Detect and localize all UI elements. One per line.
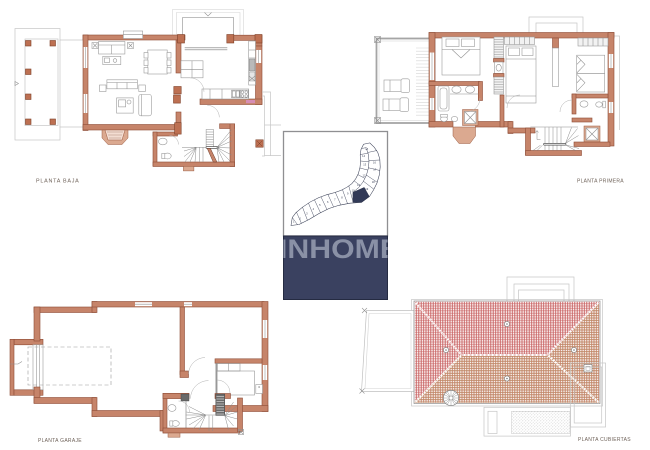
svg-text:PLANTA GARAJE: PLANTA GARAJE (38, 438, 82, 444)
svg-text:INHOME: INHOME (279, 234, 400, 264)
svg-text:PLANTA CUBIERTAS: PLANTA CUBIERTAS (578, 437, 631, 443)
svg-text:PLANTA BAJA: PLANTA BAJA (36, 179, 80, 185)
svg-text:PLANTA PRIMERA: PLANTA PRIMERA (577, 179, 624, 185)
